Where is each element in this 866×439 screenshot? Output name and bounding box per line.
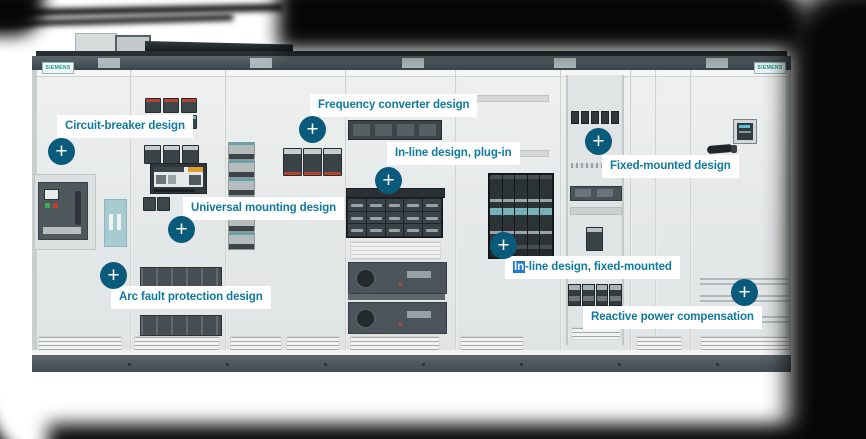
fuse-module <box>596 284 609 306</box>
interlock-slot <box>117 214 121 230</box>
converter-face <box>397 124 414 136</box>
vent-strip <box>350 241 441 260</box>
meter-module <box>228 178 255 196</box>
drive-unit <box>348 302 447 334</box>
converter-face <box>375 124 392 136</box>
hotspot-plus-button-circuit-breaker-design[interactable]: + <box>48 138 75 165</box>
hotspot-plus-button-fixed-mounted-design[interactable]: + <box>585 128 612 155</box>
hmi-alert-bar <box>188 167 203 172</box>
plug-in-module <box>348 212 366 224</box>
frame-shadow <box>788 0 866 439</box>
cabinet-top-strip <box>32 70 791 77</box>
converter-face <box>419 124 436 136</box>
hotspot-label-in-line-design-fixed-mounted[interactable]: In-line design, fixed-mounted <box>505 256 680 279</box>
hotspot-label-fixed-mounted-design[interactable]: Fixed-mounted design <box>602 155 739 178</box>
meter-module <box>228 142 255 160</box>
siemens-logo: SIEMENS <box>754 62 786 74</box>
switch-module <box>144 145 161 164</box>
compact-drive <box>323 148 342 176</box>
converter-strip <box>348 120 442 140</box>
hotspot-plus-button-in-line-design-fixed-mounted[interactable]: + <box>490 232 517 259</box>
hotspot-plus-button-in-line-design-plug-in[interactable]: + <box>375 167 402 194</box>
plug-in-module <box>404 224 422 236</box>
hmi-widget <box>168 175 176 184</box>
plug-in-module <box>367 224 385 236</box>
label-text: -line design, fixed-mounted <box>525 261 672 273</box>
breaker-module <box>145 98 161 113</box>
arc-protection-rack <box>140 315 222 336</box>
device-face <box>575 189 591 197</box>
hmi-screen <box>154 167 203 187</box>
plug-in-module <box>404 212 422 224</box>
cabinet-right-edge <box>786 70 791 355</box>
fuse-module-row <box>568 284 622 306</box>
frame-shadow <box>0 0 44 36</box>
drive-fan <box>355 308 376 329</box>
small-module <box>143 197 156 211</box>
fuse-module <box>582 284 595 306</box>
drive-led <box>399 283 402 286</box>
fuse-switch-row <box>571 111 619 124</box>
hotspot-plus-button-arc-fault-protection-design[interactable]: + <box>100 262 127 289</box>
hmi-buttons <box>154 189 194 192</box>
frame-shadow <box>0 14 233 27</box>
drive-fan <box>355 268 376 289</box>
breaker-module <box>163 98 179 113</box>
breaker-display <box>44 189 59 200</box>
hotspot-label-arc-fault-protection-design[interactable]: Arc fault protection design <box>111 286 271 309</box>
plug-in-module <box>367 212 385 224</box>
drive-unit <box>348 262 447 294</box>
switch-disconnector <box>586 227 603 251</box>
hmi-display <box>150 163 207 194</box>
drive-divider <box>348 294 445 300</box>
meter-module <box>228 232 255 250</box>
blank-strip <box>570 207 622 215</box>
breaker-off-button <box>53 203 58 208</box>
siemens-logo: SIEMENS <box>42 62 74 74</box>
fuse-switch <box>591 111 599 124</box>
plug-in-module <box>367 199 385 211</box>
plug-in-module <box>348 199 366 211</box>
cabinet-seam <box>560 70 562 355</box>
converter-face <box>353 124 370 136</box>
compact-drive <box>283 148 302 176</box>
hotspot-label-frequency-converter-design[interactable]: Frequency converter design <box>310 94 477 117</box>
display-readout <box>739 125 750 128</box>
plug-in-module <box>423 212 441 224</box>
arc-protection-rack <box>140 267 222 288</box>
breaker-handle <box>75 191 81 225</box>
device-strip <box>570 186 622 201</box>
interlock-slot <box>109 214 113 230</box>
switch-module <box>163 145 180 164</box>
fuse-module <box>568 284 581 306</box>
air-circuit-breaker <box>38 182 88 240</box>
drive-label <box>407 311 431 318</box>
switch-module <box>182 145 199 164</box>
door-display <box>733 119 757 144</box>
cabinet-seam <box>130 70 132 355</box>
hmi-widget <box>156 175 166 184</box>
plug-in-module <box>404 199 422 211</box>
hotspot-label-circuit-breaker-design[interactable]: Circuit-breaker design <box>57 115 193 138</box>
fuse-module <box>609 284 622 306</box>
compact-drive <box>303 148 322 176</box>
highlighted-text: In <box>513 261 525 273</box>
fuse-strip <box>528 175 540 257</box>
drive-label <box>407 271 431 278</box>
hmi-header <box>154 167 184 172</box>
hotspot-label-universal-mounting-design[interactable]: Universal mounting design <box>183 197 344 220</box>
product-explorer-image: SIEMENS SIEMENS <box>0 0 866 439</box>
plug-in-module <box>423 224 441 236</box>
small-module <box>157 197 170 211</box>
fuse-strip <box>540 175 552 257</box>
hotspot-plus-button-reactive-power-compensation[interactable]: + <box>731 279 758 306</box>
door-handle-mount <box>731 145 737 153</box>
hotspot-label-in-line-design-plug-in[interactable]: In-line design, plug-in <box>387 142 520 165</box>
breaker-on-button <box>45 203 50 208</box>
breaker-module <box>181 98 197 113</box>
hmi-widget <box>189 175 201 185</box>
plug-in-module <box>423 199 441 211</box>
display-buttons <box>739 131 751 133</box>
plug-in-module <box>386 224 404 236</box>
interlock-plate <box>104 199 127 247</box>
plug-in-module <box>386 199 404 211</box>
fuse-switch <box>611 111 619 124</box>
frame-shadow <box>48 424 866 439</box>
hotspot-label-reactive-power-compensation[interactable]: Reactive power compensation <box>583 306 762 329</box>
frame-shadow <box>0 4 283 17</box>
plug-in-module-rack <box>346 197 443 238</box>
top-rail <box>32 56 791 70</box>
hotspot-plus-button-frequency-converter-design[interactable]: + <box>299 116 326 143</box>
fuse-switch <box>601 111 609 124</box>
plinth <box>32 355 791 372</box>
breaker-rating-plate <box>43 227 81 234</box>
fuse-switch <box>571 111 579 124</box>
fuse-switch <box>581 111 589 124</box>
door-display-screen <box>737 123 753 140</box>
meter-module <box>228 160 255 178</box>
device-face <box>597 189 613 197</box>
plug-in-module <box>348 224 366 236</box>
plug-in-module <box>386 212 404 224</box>
drive-led <box>399 323 402 326</box>
hotspot-plus-button-universal-mounting-design[interactable]: + <box>168 216 195 243</box>
